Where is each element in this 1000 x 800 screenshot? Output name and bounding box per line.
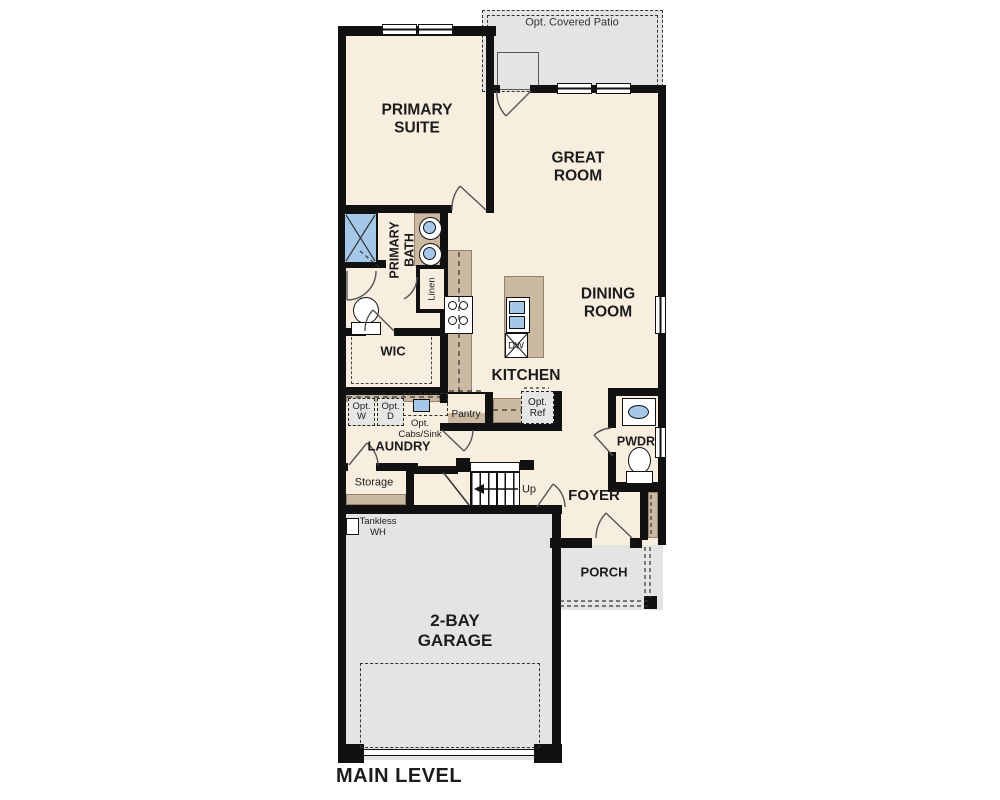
wall [520,460,534,470]
foyer-closet [648,492,658,538]
garage-label: 2-BAY GARAGE [418,611,493,651]
wall [640,492,648,540]
wall [394,328,448,336]
wall [530,85,558,93]
sink-basin [509,316,525,329]
pwdr-sink-basin [628,405,649,419]
pantry-label: Pantry [452,409,481,421]
shower [343,212,378,264]
storage-label: Storage [355,477,394,490]
storage-shelf [346,494,406,505]
tankless-water-heater [346,518,359,535]
opt-cabs-sink-label: Opt. Cabs/Sink [398,418,441,440]
island-sink [506,297,530,333]
porch-label: PORCH [581,564,628,579]
primary-suite-label: PRIMARY SUITE [382,102,453,139]
laundry-label: LAUNDRY [367,438,430,453]
wall [608,388,616,428]
window [557,83,592,94]
window [418,24,453,35]
opt-fridge-box: Opt. Ref [521,391,554,424]
tankless-wh-label: Tankless WH [360,516,397,538]
wall [553,391,562,424]
opt-washer-box: Opt. W [348,398,375,426]
burner-icon [448,316,457,325]
stair-treads [470,472,520,506]
toilet-bowl [628,447,651,474]
pwdr-label: PWDR [617,435,655,450]
wall [338,463,348,471]
toilet-tank [351,322,381,335]
bath-sink [419,217,442,240]
bath-sink-basin [423,221,436,234]
sink-basin [509,301,525,314]
wic-label: WIC [380,343,405,358]
toilet-bowl [353,297,379,324]
kitchen-label: KITCHEN [492,367,561,385]
bath-sink [419,243,442,266]
floor-plan: Opt. W Opt. D Opt. Ref [0,0,1000,800]
cooktop [444,296,473,334]
opt-sink-outline [403,393,448,416]
main-level-title: MAIN LEVEL [336,765,462,788]
pwdr-sink [622,398,656,426]
burner-icon [448,301,457,310]
wall [338,505,562,514]
wall [550,538,592,548]
dining-room-label: DINING ROOM [581,286,635,323]
window [655,296,666,334]
patio-label: Opt. Covered Patio [525,17,619,30]
window [655,427,666,458]
window [382,24,417,35]
wall [440,423,562,431]
dw-label: DW [508,340,524,351]
up-label: Up [522,484,536,497]
linen-label: Linen [426,277,437,300]
burner-icon [459,301,468,310]
wall [485,392,493,423]
porch-post [644,596,657,609]
kitchen-counter-lower [493,398,522,423]
bath-sink-basin [423,247,436,260]
wall [338,26,496,36]
wall [486,85,500,93]
garage-bay-outline [360,663,540,748]
wall [630,538,642,548]
wall [412,466,458,474]
great-room-label: GREAT ROOM [551,150,604,187]
primary-bath-label: PRIMARY BATH [387,221,417,278]
toilet-tank [626,471,653,484]
wall [456,458,470,472]
window [596,83,631,94]
stair-landing [470,462,520,472]
burner-icon [459,316,468,325]
foyer-label: FOYER [568,487,620,505]
wall [486,26,494,213]
wall [608,388,666,396]
garage-door [364,749,534,756]
